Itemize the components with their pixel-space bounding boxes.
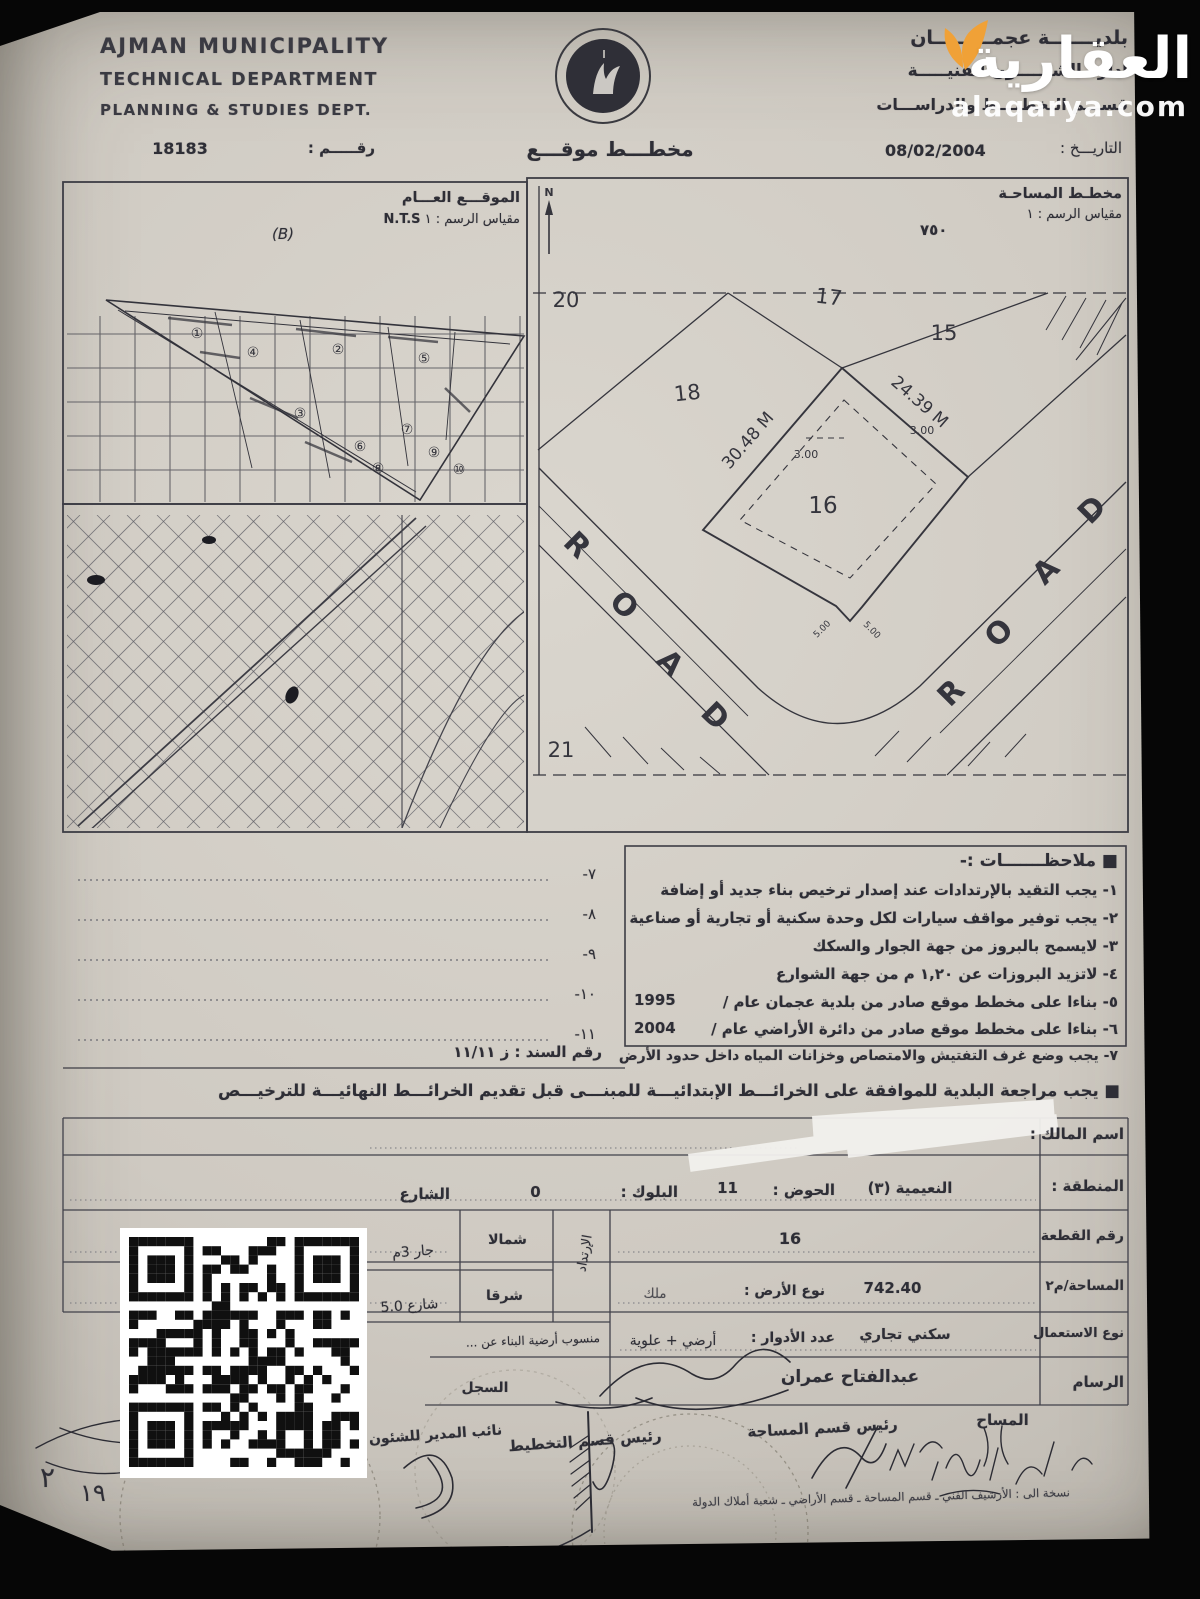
use-value: سكني تجاري [845, 1327, 965, 1344]
note-item-2: ٢- يجب توفير مواقف سيارات لكل وحدة سكنية… [640, 910, 1118, 927]
note-item-4: ٤- لاتزيد البروزات عن ١,٢٠ م من جهة الشو… [640, 966, 1118, 983]
block-value: 0 [508, 1184, 563, 1201]
setback-north-value: جار 3م [368, 1241, 459, 1263]
setback-label: الإرتداد [573, 1223, 598, 1285]
scanned-site-plan-document: ① ② ③ ④ ⑤ ⑥ ⑦ ⑧ ⑨ ⑩ [0, 0, 1200, 1599]
region-label: المنطقة : [1042, 1178, 1124, 1195]
floors-value: أرضي + علوية [618, 1333, 728, 1349]
floor-level-note: منسوب أرضية البناء عن ... [375, 1332, 600, 1354]
surveyor-sign-label: المساح [955, 1412, 1050, 1429]
note-item-1: ١- يجب التقيد بالإرتدادات عند إصدار ترخي… [640, 882, 1118, 899]
site-plan-scale-label: مقياس الرسم : ١ [995, 208, 1122, 223]
deed-value: ز ١١/١١ [453, 1043, 509, 1061]
blank-note-number-8: ٨- [552, 906, 596, 923]
note-year-1995: 1995 [634, 992, 676, 1009]
planning-head-sign-label: رئيس قسم التخطيط [505, 1427, 666, 1455]
site-plan-scale-value: ٧٥٠ [920, 222, 947, 239]
basin-value: 11 [700, 1180, 755, 1197]
general-location-scale: مقياس الرسم : ١ N.T.S [330, 213, 520, 228]
org-subdept-line: PLANNING & STUDIES DEPT. [100, 102, 372, 119]
survey-head-sign-label: رئيس قسم المساحة [740, 1416, 906, 1442]
review-note: ■ يجب مراجعة البلدية للموافقة على الخرائ… [180, 1082, 1120, 1101]
deputy-director-sign-label: نائب المدير للشئون [368, 1422, 504, 1447]
handwritten-mark-1: ٢ [40, 1462, 55, 1494]
blank-note-number-10: ١٠- [552, 986, 596, 1003]
block-label: البلوك : [608, 1184, 678, 1201]
blank-note-number-7: ٧- [552, 866, 596, 883]
municipality-name: بلديـــــــة عجمـــــــــان [830, 28, 1128, 50]
scale-label: مقياس الرسم : ١ [425, 212, 520, 227]
land-type-value: ملك [625, 1287, 685, 1303]
owner-label: اسم المالك : [1042, 1126, 1124, 1143]
street-label: الشارع [385, 1186, 450, 1203]
region-value: النعيمية (٣) [845, 1180, 975, 1197]
copy-distribution-note: نسخة الى : الأرشيف الفني ـ قسم المساحة ـ… [480, 1486, 1070, 1515]
document-title: مخطـــط موقـــع [520, 138, 700, 161]
notes-title: ■ ملاحظـــــــات :- [640, 852, 1118, 872]
draftsman-label: الرسام [1042, 1374, 1124, 1391]
deed-number: رقم السند : ز ١١/١١ [340, 1044, 602, 1061]
setback-north-dir: شمالا [465, 1232, 550, 1248]
note-item-6: ٦- بناءا على مخطط موقع صادر من دائرة الأ… [640, 1021, 1118, 1038]
org-name-line: AJMAN MUNICIPALITY [100, 34, 389, 58]
note-year-2004: 2004 [634, 1020, 676, 1037]
use-label: نوع الاستعمال [1036, 1327, 1124, 1342]
zone-tag: (B) [272, 226, 294, 243]
handwritten-mark-2: ١٩ [80, 1480, 106, 1508]
area-value: 742.40 [845, 1280, 940, 1297]
blank-note-number-9: ٩- [552, 946, 596, 963]
technical-affairs-line: ادارة الشئـــــون الفنيـــــة [830, 62, 1128, 82]
land-type-label: نوع الأرض : [730, 1283, 825, 1299]
note-item-3: ٣- لايسمح بالبروز من جهة الجوار والسكك [640, 938, 1118, 955]
deed-label: رقم السند : [515, 1043, 603, 1061]
org-dept-line: TECHNICAL DEPARTMENT [100, 70, 378, 90]
area-label: المساحة/م٢ [1042, 1279, 1124, 1295]
draftsman-value: عبدالفتاح عمران [770, 1368, 930, 1388]
document-number-label: رقـــــم : [255, 140, 375, 157]
floors-label: عدد الأدوار : [735, 1330, 835, 1346]
note-item-7: ٧- يجب وضع غرف التفتيش والامتصاص وخزانات… [640, 1048, 1118, 1064]
planning-studies-line: قســـم التخطيـــط والدراســـات [830, 96, 1128, 114]
plot-number-value: 16 [750, 1230, 830, 1248]
general-location-title: الموقـــع العـــام [400, 190, 520, 207]
date-value: 08/02/2004 [885, 142, 986, 160]
date-label: التاريـــخ : [1000, 140, 1122, 157]
site-plan-title: مخطـط المساحـة [1000, 186, 1122, 203]
basin-label: الحوض : [765, 1182, 835, 1199]
register-label: السجل [445, 1380, 525, 1396]
scale-value: N.T.S [384, 212, 421, 227]
setback-east-dir: شرقا [462, 1288, 547, 1304]
document-number: 18183 [135, 140, 225, 158]
plot-number-label: رقم القطعة [1042, 1228, 1124, 1244]
note-item-5: ٥- بناءا على مخطط موقع صادر من بلدية عجم… [640, 994, 1118, 1011]
blank-note-number-11: ١١- [552, 1026, 596, 1043]
setback-east-value: شارع 5.0 [362, 1295, 458, 1318]
